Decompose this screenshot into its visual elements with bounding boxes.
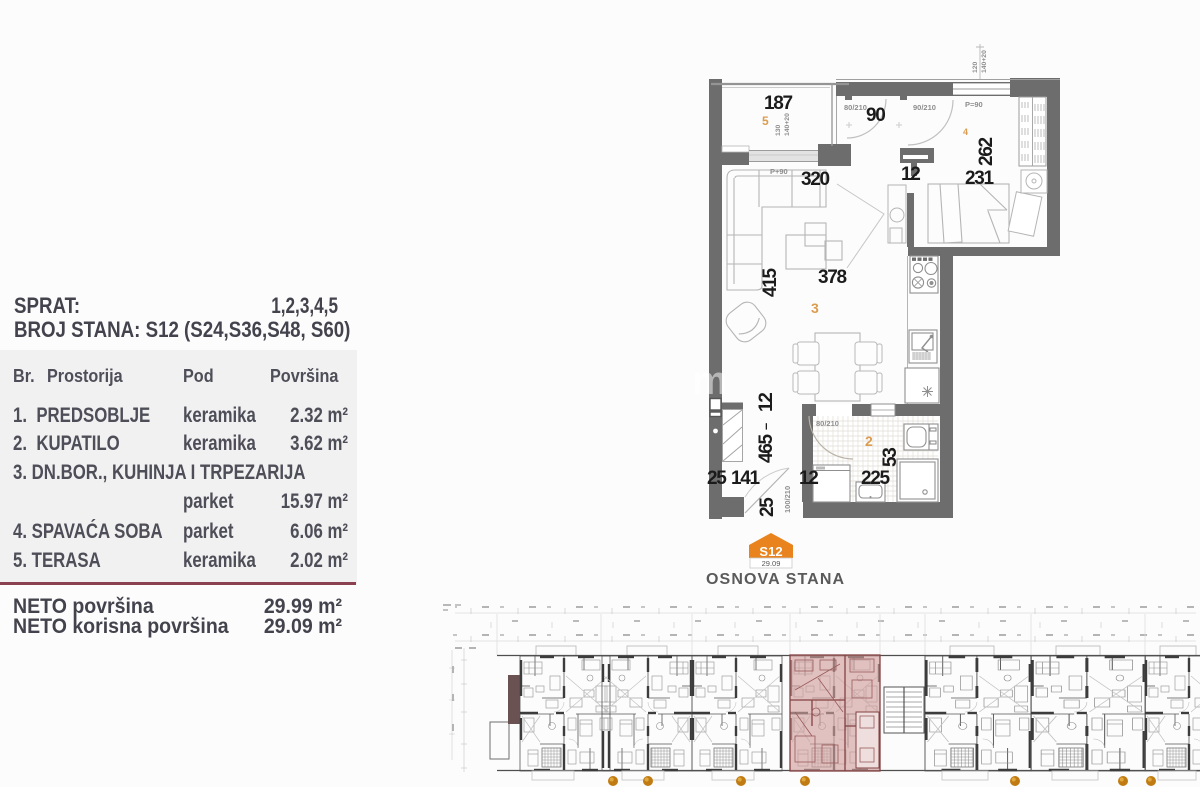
svg-text:231: 231 bbox=[965, 168, 995, 189]
svg-text:120: 120 bbox=[972, 61, 979, 73]
svg-text:130: 130 bbox=[775, 124, 782, 136]
svg-text:140+20: 140+20 bbox=[981, 50, 988, 73]
svg-text:378: 378 bbox=[818, 267, 847, 288]
svg-text:80/210: 80/210 bbox=[844, 103, 867, 112]
svg-text:90/210: 90/210 bbox=[913, 103, 936, 112]
svg-text:25: 25 bbox=[757, 497, 778, 517]
svg-text:5: 5 bbox=[762, 114, 769, 128]
svg-text:141: 141 bbox=[731, 468, 761, 489]
svg-text:90: 90 bbox=[866, 105, 885, 126]
svg-text:262: 262 bbox=[976, 137, 997, 166]
svg-text:12: 12 bbox=[756, 393, 777, 412]
svg-text:140+20: 140+20 bbox=[784, 113, 791, 136]
svg-text:S12: S12 bbox=[759, 544, 782, 559]
svg-text:465: 465 bbox=[756, 433, 777, 463]
svg-text:320: 320 bbox=[801, 169, 830, 190]
svg-text:415: 415 bbox=[760, 267, 781, 297]
svg-text:187: 187 bbox=[764, 93, 793, 114]
svg-text:80/210: 80/210 bbox=[816, 419, 839, 428]
svg-text:P=90: P=90 bbox=[965, 100, 983, 109]
svg-text:53: 53 bbox=[880, 448, 901, 467]
svg-text:P+90: P+90 bbox=[770, 167, 788, 176]
svg-text:2: 2 bbox=[865, 433, 873, 449]
svg-text:29.09: 29.09 bbox=[762, 559, 781, 568]
svg-text:12: 12 bbox=[901, 164, 920, 185]
svg-text:3: 3 bbox=[811, 300, 819, 316]
svg-text:m: m bbox=[692, 359, 728, 403]
svg-text:4: 4 bbox=[963, 127, 968, 137]
svg-text:12: 12 bbox=[799, 468, 818, 489]
svg-text:25: 25 bbox=[707, 468, 727, 489]
svg-text:OSNOVA STANA: OSNOVA STANA bbox=[706, 571, 845, 588]
svg-text:225: 225 bbox=[861, 468, 891, 489]
svg-text:–: – bbox=[758, 423, 773, 430]
svg-text:100/210: 100/210 bbox=[783, 486, 792, 513]
